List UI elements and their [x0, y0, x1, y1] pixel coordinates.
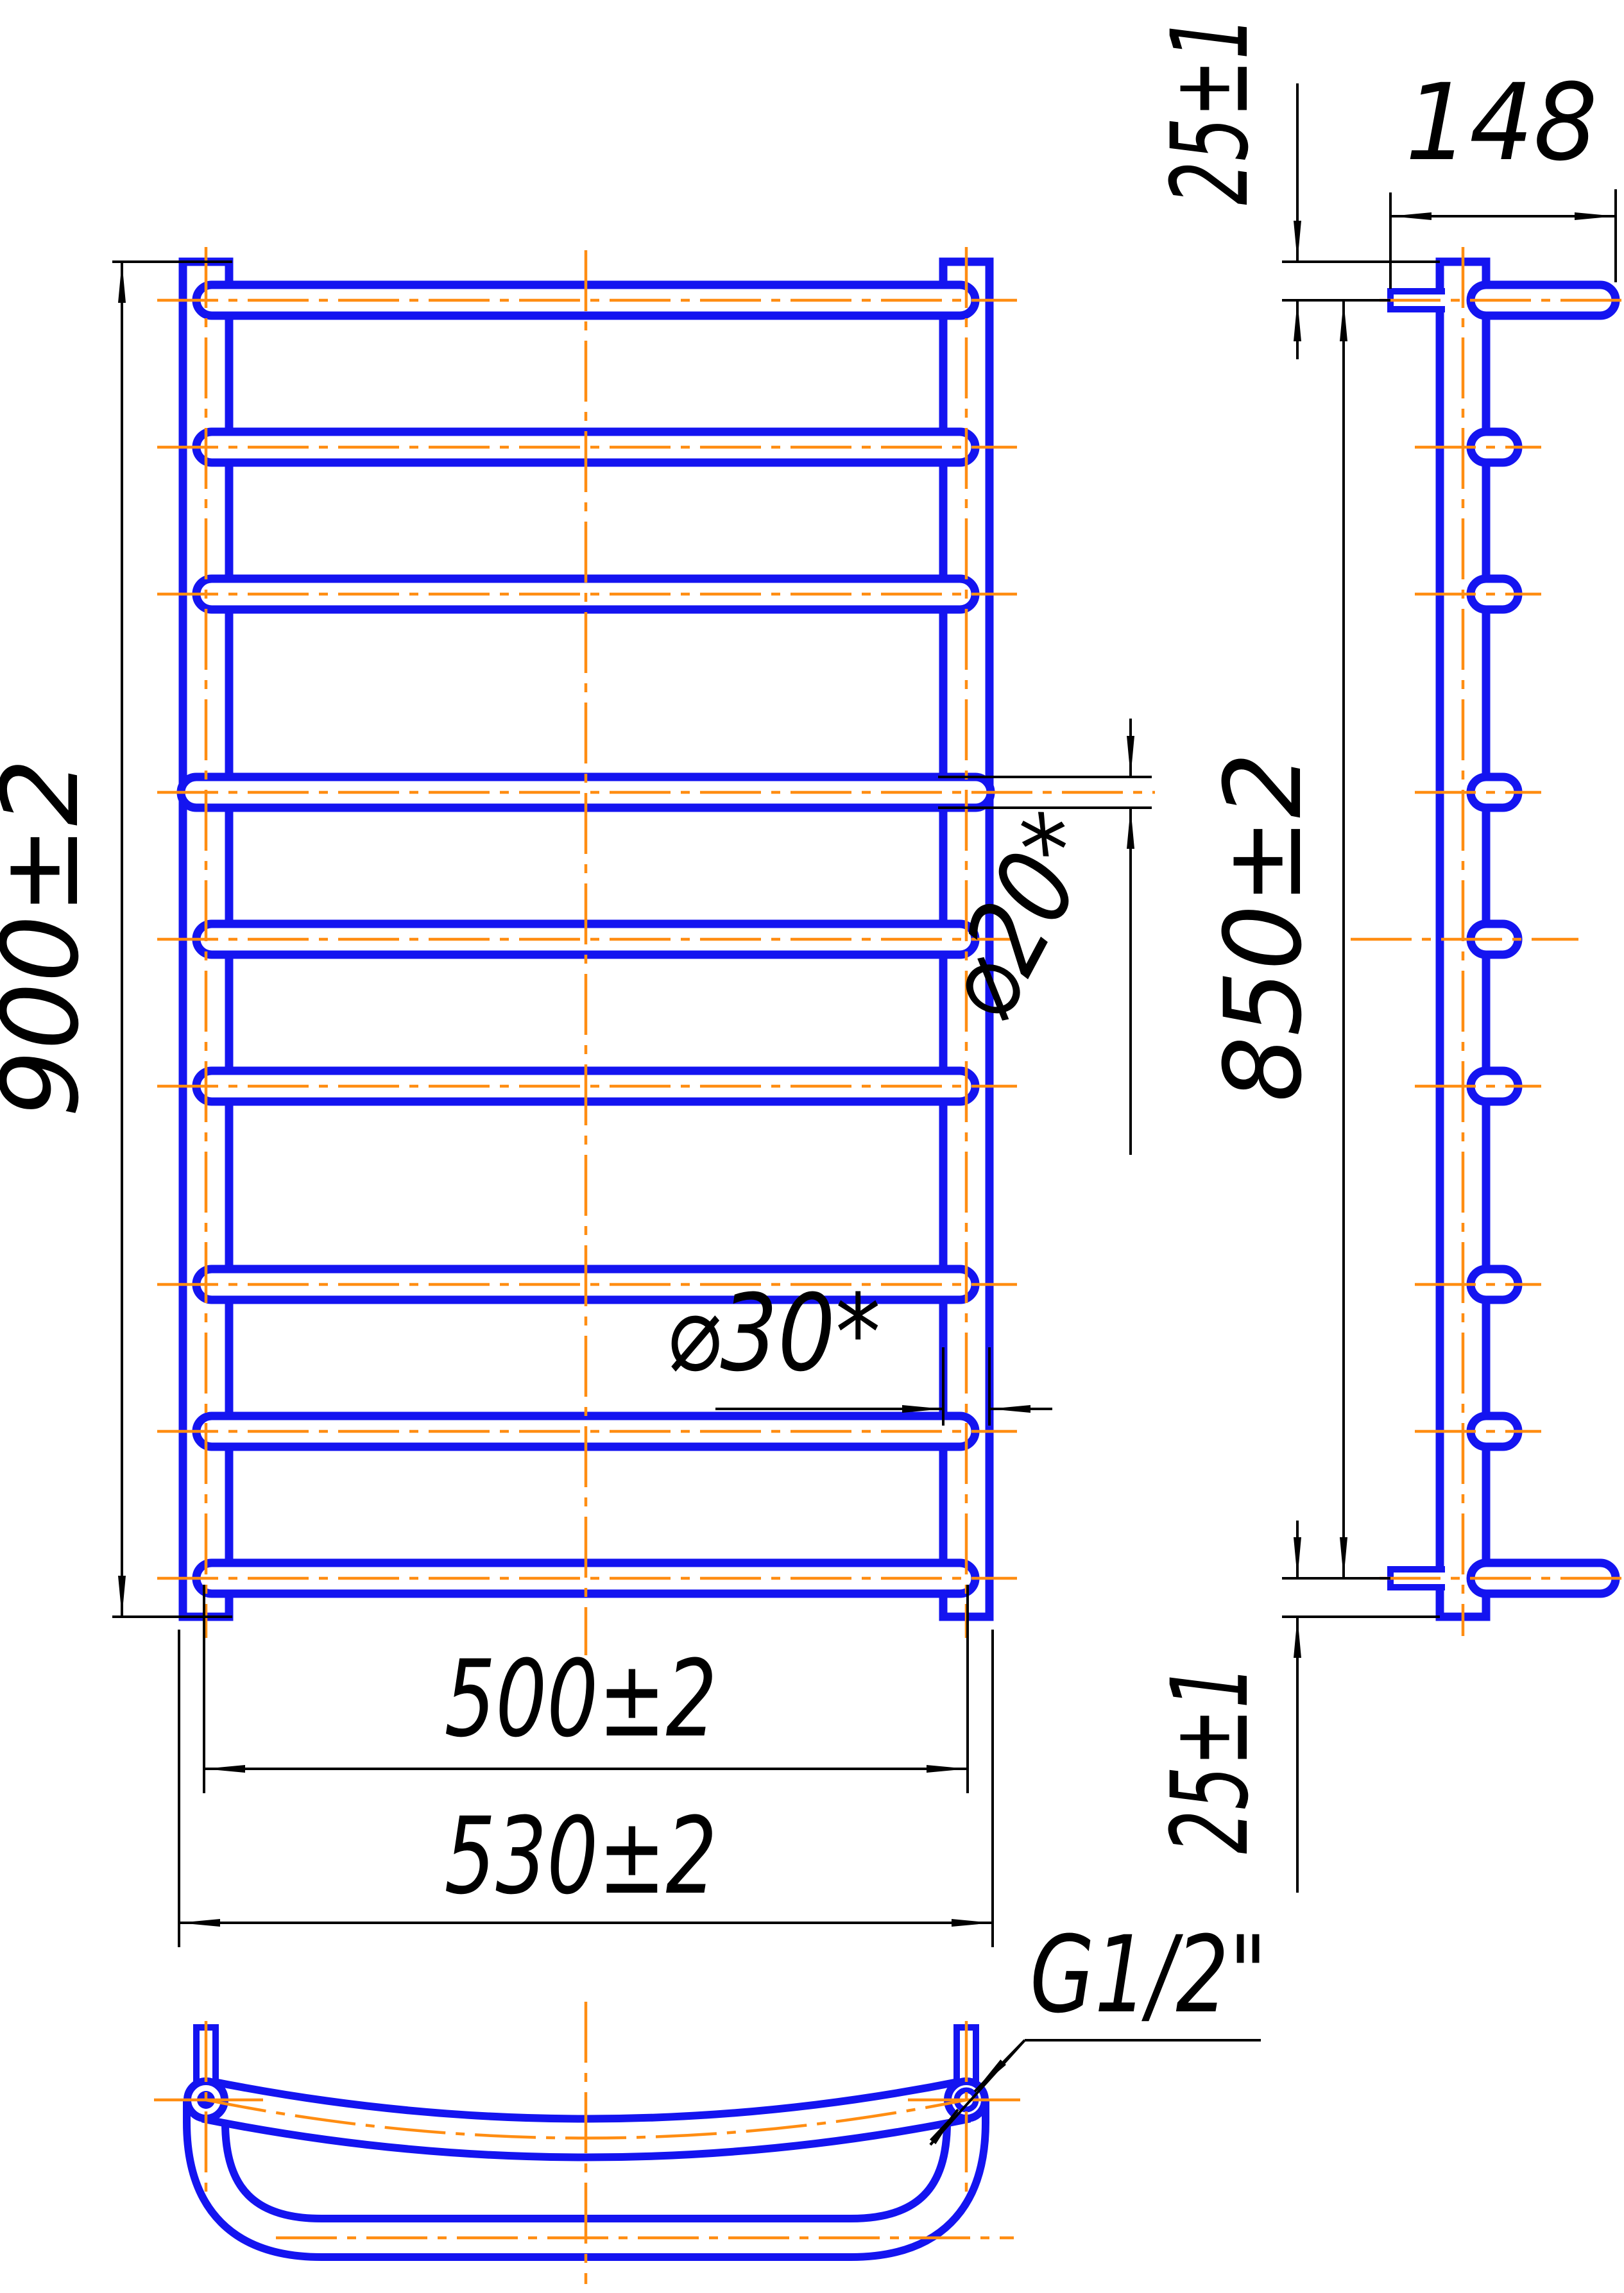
dim-text-dia30: ⌀30*	[666, 1272, 881, 1395]
dim-text-900: 900±2	[0, 758, 102, 1118]
dim-axes-span-850: 850±2	[1202, 300, 1344, 1578]
dim-text-148: 148	[1405, 61, 1598, 184]
towel-rail-drawing: 900±2 500±2 530±2 ⌀20*	[0, 0, 1624, 2293]
dim-depth-148: 148	[1390, 61, 1616, 289]
dim-text-25-bottom: 25±1	[1149, 1665, 1272, 1854]
side-view	[1351, 247, 1624, 1636]
dim-text-530: 530±2	[445, 1794, 717, 1918]
bottom-view	[154, 2002, 1020, 2284]
dim-text-500: 500±2	[445, 1637, 717, 1760]
drawing-canvas: 900±2 500±2 530±2 ⌀20*	[0, 0, 1624, 2293]
dim-text-thread: G1/2"	[1030, 1913, 1267, 2036]
dim-text-25-top: 25±1	[1149, 16, 1272, 205]
dim-collector-diameter-30: ⌀30*	[666, 1272, 1053, 1426]
dim-text-850: 850±2	[1202, 753, 1325, 1102]
